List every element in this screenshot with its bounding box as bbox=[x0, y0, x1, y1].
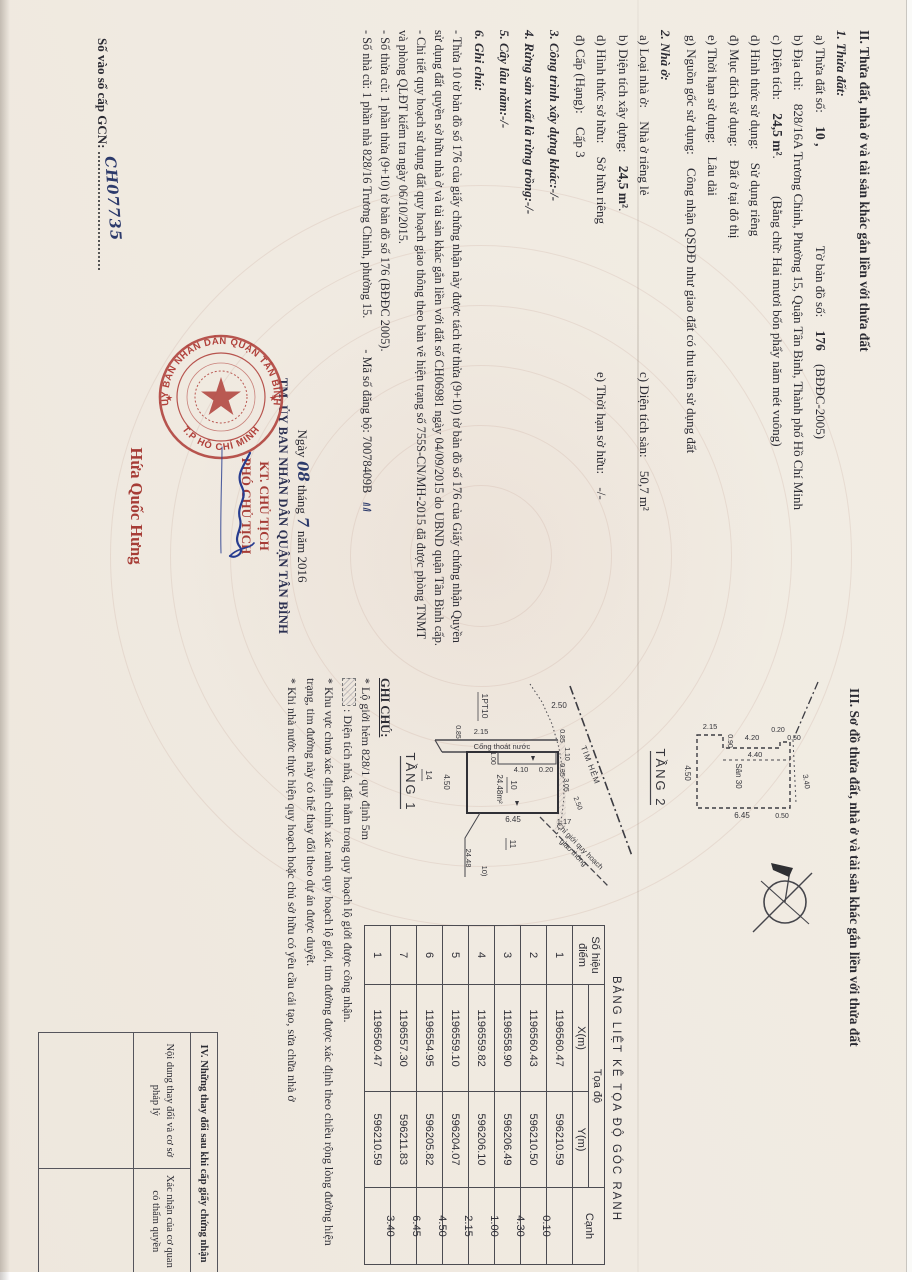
coord-cell: 2 bbox=[521, 926, 547, 985]
date-word: năm 2016 bbox=[295, 531, 310, 583]
signature-ink bbox=[142, 435, 282, 585]
notes-block: - Thửa 10 tờ bản đồ số 176 của giấy chứn… bbox=[359, 30, 467, 646]
dim-label: 3.40 bbox=[801, 774, 812, 790]
ghi-chu-legend: : Diện tích nhà, đất nằm trong quy hoạch… bbox=[339, 678, 358, 1272]
ownership-value: Sở hữu riêng bbox=[595, 157, 610, 224]
coord-cell: 1196560.43 bbox=[521, 985, 547, 1092]
ghi-chu-block: GHI CHÚ: * Lộ giới hẻm 828/1 quy định 5m… bbox=[283, 678, 394, 1272]
parcel-number-value: 10 , bbox=[813, 126, 828, 146]
house-type-value: Nhà ở riêng lẻ bbox=[638, 121, 653, 195]
use-purpose-row: đ) Mục đích sử dụng: Đất ở tại đô thị bbox=[724, 30, 746, 650]
svg-text:0.90: 0.90 bbox=[726, 734, 733, 748]
floorplan-panel: TẦNG 1 1PT10 2.50 0.85 2.15 Cống thoát n… bbox=[380, 670, 830, 940]
svg-text:1.00: 1.00 bbox=[489, 751, 496, 765]
coord-cell: 7 bbox=[391, 926, 417, 985]
svg-text:TIM HẺM: TIM HẺM bbox=[579, 744, 602, 785]
terrace-label: Sân 30 bbox=[734, 763, 743, 789]
dim-label: 2.50 bbox=[572, 796, 583, 811]
legend-text: : Diện tích nhà, đất nằm trong quy hoạch… bbox=[341, 709, 355, 1022]
coordinate-table-block: BẢNG LIỆT KÊ TỌA ĐỘ GÓC RANH Số hiệuđiểm… bbox=[364, 925, 622, 1273]
neighbor-plot-label: 14 bbox=[422, 769, 434, 781]
arrow-marker bbox=[515, 801, 519, 806]
pt-label: 1PT10 bbox=[478, 692, 490, 721]
coord-cell: 4 bbox=[469, 926, 495, 985]
other-construction-heading: 3. Công trình xây dựng khác:-/- bbox=[545, 30, 565, 650]
field-label: b) Diện tích xây dựng: bbox=[616, 35, 631, 153]
use-origin-row: g) Nguồn gốc sử dụng: Công nhận QSDĐ như… bbox=[681, 30, 703, 650]
field-label: e) Thời hạn sở hữu: bbox=[595, 372, 610, 474]
ownership-row: d) Hình thức sở hữu: Sở hữu riêng e) Thờ… bbox=[591, 30, 613, 650]
col-header-edge: Cạnh bbox=[573, 1187, 605, 1264]
field-label: Tờ bản đồ số: bbox=[813, 246, 828, 318]
changes-col2-header: Xác nhận của cơ quan có thẩm quyền bbox=[134, 1168, 191, 1274]
svg-text:10: 10 bbox=[509, 780, 519, 790]
dim-label: 4.10 bbox=[514, 765, 529, 774]
svg-text:TẦNG 1: TẦNG 1 bbox=[403, 753, 418, 812]
north-arrow-icon bbox=[753, 863, 812, 932]
coord-cell: 3 bbox=[495, 926, 521, 985]
col-header-y: Y(m) bbox=[573, 1092, 589, 1188]
svg-text:24.48: 24.48 bbox=[464, 849, 473, 868]
coord-cell: 596210.59 bbox=[547, 1092, 573, 1188]
section-2-title: II. Thửa đất, nhà ở và tài sản khác gắn … bbox=[856, 30, 872, 650]
grade-row: đ) Cấp (Hạng): Cấp 3 bbox=[570, 30, 592, 650]
use-purpose-value: Đất ở tại đô thị bbox=[727, 160, 742, 238]
col-header-coord: Tọa độ bbox=[589, 985, 605, 1188]
coord-cell: 596206.49 bbox=[495, 1092, 521, 1188]
paper-edge-line bbox=[906, 0, 907, 1280]
house-heading: 2. Nhà ở: bbox=[656, 30, 676, 650]
section-4-title: IV. Những thay đổi sau khi cấp giấy chứn… bbox=[191, 1033, 218, 1275]
note-text: - Số nhà cũ: 1 phần nhà 828/16 Trương Ch… bbox=[361, 30, 375, 318]
dim-label: 4.40 bbox=[748, 750, 763, 759]
tang2-label: TẦNG 2 bbox=[651, 749, 669, 808]
changes-col1-header: Nội dung thay đổi và cơ sở pháp lý bbox=[134, 1033, 191, 1169]
coord-table-body: 11196560.47596210.5921196560.43596210.50… bbox=[365, 926, 573, 1265]
coord-cell: 1196554.95 bbox=[417, 985, 443, 1092]
ghi-chu-title: GHI CHÚ: bbox=[378, 678, 392, 737]
coord-cell: 1196559.10 bbox=[443, 985, 469, 1092]
dim-label: 1.00 bbox=[489, 751, 496, 765]
seal-star-left: ★ bbox=[165, 393, 173, 403]
use-form-row: d) Hình thức sử dụng: Sử dụng riêng bbox=[745, 30, 767, 650]
svg-text:2.50: 2.50 bbox=[572, 796, 583, 811]
field-label: đ) Mục đích sử dụng: bbox=[727, 35, 742, 147]
coord-cell: 596205.82 bbox=[417, 1092, 443, 1188]
svg-text:4.50: 4.50 bbox=[683, 765, 692, 781]
svg-text:1PT10: 1PT10 bbox=[480, 693, 490, 718]
use-term-row: e) Thời hạn sử dụng: Lâu dài bbox=[702, 30, 724, 650]
use-origin-value: Công nhận QSDĐ như giao đất có thu tiền … bbox=[684, 168, 699, 453]
dim-label: 0.35 bbox=[558, 763, 565, 777]
svg-text:TẦNG 2: TẦNG 2 bbox=[653, 749, 668, 808]
map-sheet-value: 176 bbox=[813, 330, 828, 350]
photo-edge-strip bbox=[0, 1272, 912, 1280]
registry-code: - Mã số đăng bộ: 70078409B bbox=[361, 349, 375, 493]
section-3-title: III. Sơ đồ thửa đất, nhà ở và tài sản kh… bbox=[846, 688, 862, 1278]
own-term-value: -/- bbox=[595, 487, 610, 499]
dim-label: 4.20 bbox=[745, 733, 760, 742]
use-form-value: Sử dụng riêng bbox=[749, 163, 764, 237]
punct: . bbox=[770, 156, 785, 159]
parcel-number-row: a) Thửa đất số: 10 , Tờ bản đồ số: 176 (… bbox=[810, 30, 832, 650]
changes-empty-cell bbox=[39, 1168, 134, 1274]
ghi-chu-line: * Khi nhà nước thực hiện quy hoạch hoặc … bbox=[283, 678, 302, 1272]
coord-cell: 596210.50 bbox=[521, 1092, 547, 1188]
changes-table: IV. Những thay đổi sau khi cấp giấy chứn… bbox=[38, 1032, 218, 1275]
svg-text:11: 11 bbox=[508, 840, 518, 849]
parcel-heading: 1. Thửa đất: bbox=[831, 30, 851, 650]
svg-text:0.85: 0.85 bbox=[558, 729, 565, 743]
dim-label: 2.15 bbox=[474, 727, 489, 736]
handwritten-day: 08 bbox=[293, 460, 312, 482]
alley-centerline-t2 bbox=[793, 682, 818, 740]
dim-label: 0.50 bbox=[775, 813, 789, 820]
coordinate-table-title: BẢNG LIỆT KÊ TỌA ĐỘ GÓC RANH bbox=[610, 925, 622, 1273]
field-label: b) Địa chỉ: bbox=[792, 35, 807, 91]
dim-label: 4.50 bbox=[442, 774, 451, 790]
dim-label: 0.20 bbox=[771, 727, 785, 734]
coord-cell: 596206.10 bbox=[469, 1092, 495, 1188]
dim-label: 6.45 bbox=[505, 815, 521, 824]
floorplan-drawing: TẦNG 1 1PT10 2.50 0.85 2.15 Cống thoát n… bbox=[380, 670, 830, 940]
photo-shadow-edge bbox=[0, 0, 10, 1280]
svg-text:3.40: 3.40 bbox=[801, 774, 812, 790]
tang1-label: TẦNG 1 bbox=[401, 753, 419, 812]
arrow-marker bbox=[531, 756, 535, 761]
alley-centerline bbox=[570, 686, 632, 856]
address-row: b) Địa chỉ: 828/16A Trương Chinh, Phường… bbox=[788, 30, 810, 650]
build-area-value: 24,5 m² bbox=[616, 166, 631, 208]
field-label: a) Thửa đất số: bbox=[813, 35, 828, 113]
field-label: e) Thời hạn sử dụng: bbox=[706, 35, 721, 143]
note-line: - Số thửa cũ: 1 phần thửa (9+10) tờ bản … bbox=[377, 30, 395, 646]
coord-cell: 1 bbox=[547, 926, 573, 985]
notes-heading: 6. Ghi chú: bbox=[470, 30, 490, 650]
dim-label: 0.20 bbox=[539, 765, 554, 774]
leader-line bbox=[465, 813, 480, 877]
dotted-line: CH07735 bbox=[98, 152, 112, 270]
coord-cell: 1196557.30 bbox=[391, 985, 417, 1092]
dim-label: 4.50 bbox=[683, 765, 692, 781]
dim-label: 0.85 bbox=[454, 725, 461, 739]
seal-emblem bbox=[195, 371, 247, 423]
svg-text:3.05: 3.05 bbox=[562, 778, 569, 792]
handwritten-registry-number: CH07735 bbox=[101, 155, 125, 241]
note-line: - Thửa 10 tờ bản đồ số 176 của giấy chứn… bbox=[431, 30, 467, 646]
field-label: c) Diện tích sàn: bbox=[638, 372, 653, 458]
date-line: Ngày 08 tháng 7 năm 2016 bbox=[294, 350, 312, 662]
handwritten-month: 7 bbox=[294, 517, 313, 529]
note-line: - Chi tiết quy hoạch sử dụng đất quy hoạ… bbox=[395, 30, 431, 646]
house-type-row: a) Loại nhà ở: Nhà ở riêng lẻ c) Diện tí… bbox=[634, 30, 656, 650]
boundary-dotted-t2 bbox=[793, 740, 796, 803]
date-word: Ngày bbox=[295, 429, 310, 457]
drain-label: Cống thoát nước bbox=[474, 742, 531, 751]
col-header-x: X(m) bbox=[573, 985, 589, 1092]
coord-cell: 6 bbox=[417, 926, 443, 985]
field-label: d) Hình thức sở hữu: bbox=[595, 35, 610, 143]
svg-text:1.10: 1.10 bbox=[563, 747, 570, 761]
field-label: g) Nguồn gốc sử dụng: bbox=[684, 35, 699, 155]
dim-label: 6.45 bbox=[734, 811, 750, 820]
field-label: c) Diện tích: bbox=[770, 35, 785, 100]
field-label: đ) Cấp (Hạng): bbox=[573, 35, 588, 114]
plot-number: 10 bbox=[507, 777, 519, 793]
registry-book-label: Số vào sổ cấp GCN: bbox=[95, 38, 110, 149]
leader-label: 24.48 bbox=[464, 849, 473, 868]
floor-area-value: 50,7 m² bbox=[638, 471, 653, 511]
dim-label: 2.15 bbox=[703, 722, 718, 731]
paper-edge-margin bbox=[907, 0, 912, 1280]
col-header-point: Số hiệuđiểm bbox=[573, 926, 605, 985]
leader-label: 10) bbox=[480, 866, 489, 877]
dim-label: 0.90 bbox=[726, 734, 733, 748]
svg-text:24.48m²: 24.48m² bbox=[495, 774, 504, 804]
svg-text:Sân 30: Sân 30 bbox=[734, 763, 743, 789]
grade-value: Cấp 3 bbox=[573, 127, 588, 158]
field-label: a) Loại nhà ở: bbox=[638, 35, 653, 108]
ghi-chu-line: * Khu vực chưa xác định chính xác ranh q… bbox=[302, 678, 339, 1272]
svg-text:0.35: 0.35 bbox=[558, 763, 565, 777]
alley-label: TIM HẺM bbox=[579, 744, 602, 785]
drain-cap bbox=[435, 740, 442, 752]
registry-book-line: Số vào sổ cấp GCN: CH07735 bbox=[94, 38, 112, 270]
certificate-page: II. Thửa đất, nhà ở và tài sản khác gắn … bbox=[0, 0, 912, 1280]
ghi-chu-line: * Lộ giới hẻm 828/1 quy định 5m bbox=[357, 678, 376, 1272]
forest-heading: 4. Rừng sản xuất là rừng trồng:-/- bbox=[520, 30, 540, 650]
inner-room bbox=[498, 752, 556, 764]
svg-text:0.85: 0.85 bbox=[454, 725, 461, 739]
coord-cell: 1196560.47 bbox=[547, 985, 573, 1092]
section-4-block: IV. Những thay đổi sau khi cấp giấy chứn… bbox=[38, 1032, 218, 1275]
seal-star-right: ★ bbox=[269, 393, 277, 403]
dim-label: 0.85 bbox=[558, 729, 565, 743]
coord-cell: 596204.07 bbox=[443, 1092, 469, 1188]
area-row: c) Diện tích: 24,5 m². (Bằng chữ: Hai mư… bbox=[767, 30, 789, 650]
area-label: 24.48m² bbox=[495, 774, 504, 804]
hatch-legend-swatch bbox=[342, 678, 356, 706]
date-word: tháng bbox=[295, 485, 310, 514]
section-2-block: II. Thửa đất, nhà ở và tài sản khác gắn … bbox=[359, 30, 873, 650]
changes-empty-cell bbox=[39, 1033, 134, 1169]
punct: . bbox=[616, 208, 631, 211]
handwritten-mark bbox=[362, 500, 376, 514]
map-sheet-suffix: (BĐĐC-2005) bbox=[813, 364, 828, 439]
svg-text:14: 14 bbox=[424, 770, 434, 780]
coord-cell: 1196559.82 bbox=[469, 985, 495, 1092]
neighbor-plot-label: 11 bbox=[506, 838, 518, 850]
area-value: 24,5 m² bbox=[770, 113, 785, 155]
dim-label: 3.05 bbox=[562, 778, 569, 792]
use-term-value: Lâu dài bbox=[706, 157, 721, 196]
svg-text:10): 10) bbox=[480, 866, 489, 877]
build-area-row: b) Diện tích xây dựng: 24,5 m². bbox=[613, 30, 635, 650]
field-label: d) Hình thức sử dụng: bbox=[749, 35, 764, 149]
coord-cell: 5 bbox=[443, 926, 469, 985]
dim-label: 1.10 bbox=[563, 747, 570, 761]
dim-label: 2.50 bbox=[551, 701, 567, 710]
address-value: 828/16A Trương Chinh, Phường 15, Quận Tâ… bbox=[792, 104, 807, 510]
svg-text:4.50: 4.50 bbox=[442, 774, 451, 790]
note-line: - Số nhà cũ: 1 phần nhà 828/16 Trương Ch… bbox=[359, 30, 377, 646]
area-in-words: (Bằng chữ: Hai mươi bốn phẩy năm mét vuô… bbox=[770, 196, 785, 447]
signature-graphic bbox=[142, 435, 282, 585]
coordinate-table: Số hiệuđiểm Tọa độ Cạnh X(m) Y(m) 111965… bbox=[364, 925, 605, 1265]
coord-cell: 1196558.90 bbox=[495, 985, 521, 1092]
perennial-heading: 5. Cây lâu năm:-/- bbox=[495, 30, 515, 650]
coord-cell: 596211.83 bbox=[391, 1092, 417, 1188]
